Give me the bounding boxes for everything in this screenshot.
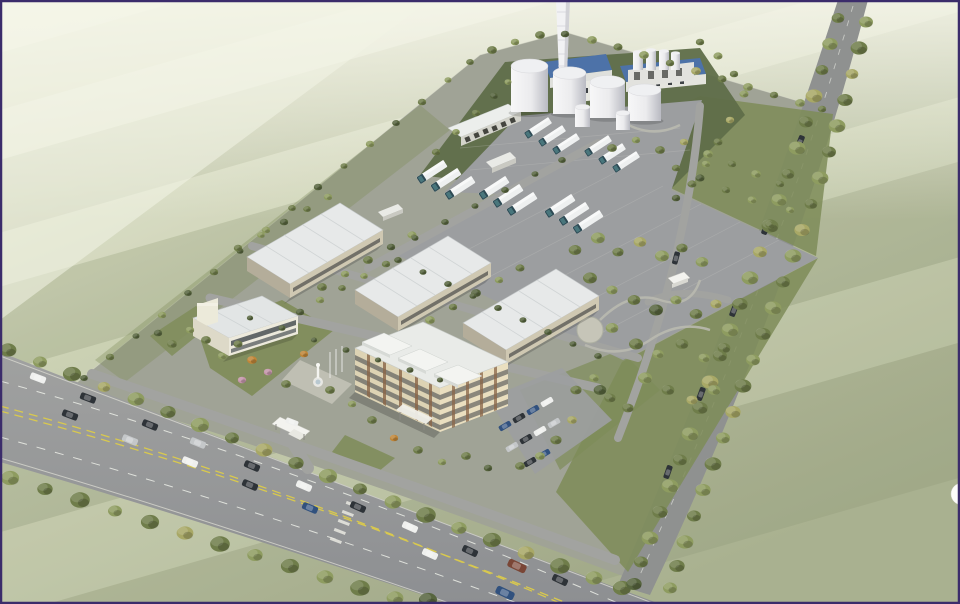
- small-storage-tank: [616, 110, 630, 130]
- aerial-rendering-canvas: [0, 0, 960, 604]
- storage-tank: [509, 59, 551, 117]
- storage-tank: [626, 84, 664, 125]
- rendering-stage: [0, 0, 960, 604]
- small-storage-tank: [575, 104, 590, 127]
